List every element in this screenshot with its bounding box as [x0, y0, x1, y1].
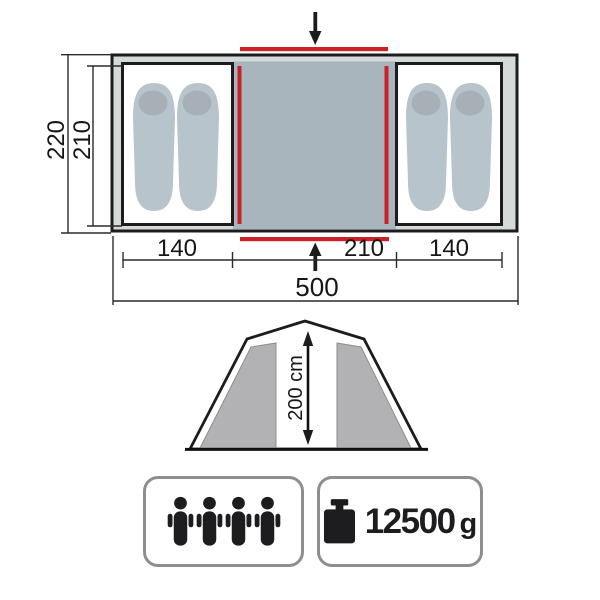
entrance-line-top	[240, 47, 388, 51]
entrance-arrow-bottom-icon	[309, 243, 322, 272]
height-label: 200 cm	[285, 355, 307, 421]
capacity-icons	[167, 496, 281, 547]
person-icon	[196, 496, 223, 547]
sleeping-pad-icon	[450, 83, 492, 211]
dim-label-right-cabin: 140	[429, 235, 469, 262]
person-icon	[167, 496, 194, 547]
tent-diagrams: 220 210 140 210 140 500	[0, 0, 600, 470]
person-icon	[225, 496, 252, 547]
divider-line-left	[238, 66, 242, 224]
weight-value: 12500	[365, 504, 455, 539]
weight-icon	[323, 499, 356, 544]
person-icon	[254, 496, 281, 547]
weight-text: 12500 g	[365, 504, 478, 539]
dim-label-total-width: 500	[295, 272, 338, 302]
tent-spec-sheet: 220 210 140 210 140 500	[0, 0, 600, 600]
tent-side-view: 200 cm	[185, 321, 428, 449]
capacity-badge	[143, 476, 304, 567]
dim-label-left-cabin: 140	[157, 235, 197, 262]
sleeping-pad-icon	[133, 83, 175, 211]
weight-badge: 12500 g	[317, 476, 483, 567]
entrance-arrow-top-icon	[309, 12, 322, 45]
dim-label-outer-depth: 220	[43, 120, 70, 160]
depth-dimensions: 220 210	[43, 55, 122, 233]
sleeping-pad-icon	[406, 83, 448, 211]
weight-unit: g	[460, 510, 478, 539]
dim-label-center: 210	[344, 235, 384, 262]
floor-plan: 220 210 140 210 140 500	[43, 12, 518, 305]
dim-label-inner-depth: 210	[69, 120, 96, 160]
divider-line-right	[385, 66, 389, 224]
center-room	[233, 62, 396, 230]
sleeping-pad-icon	[177, 83, 219, 211]
